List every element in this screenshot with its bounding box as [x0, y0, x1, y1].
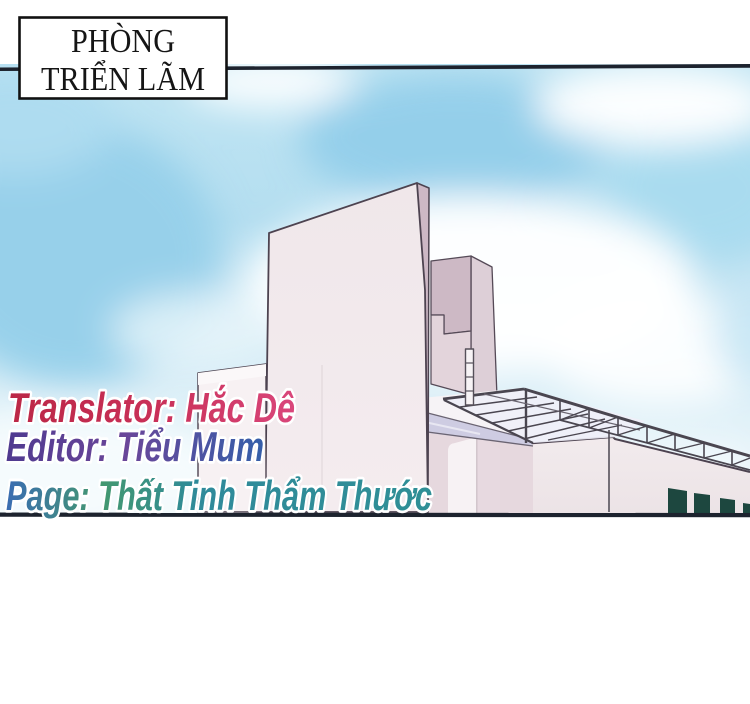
svg-text:Editor: Tiểu Mum: Editor: Tiểu Mum: [6, 423, 264, 470]
svg-text:TRIỂN LÃM: TRIỂN LÃM: [41, 60, 205, 98]
svg-text:PHÒNG: PHÒNG: [71, 22, 175, 60]
svg-text:Page: Thất Tinh Thẩm Thước: Page: Thất Tinh Thẩm Thước: [6, 472, 432, 519]
